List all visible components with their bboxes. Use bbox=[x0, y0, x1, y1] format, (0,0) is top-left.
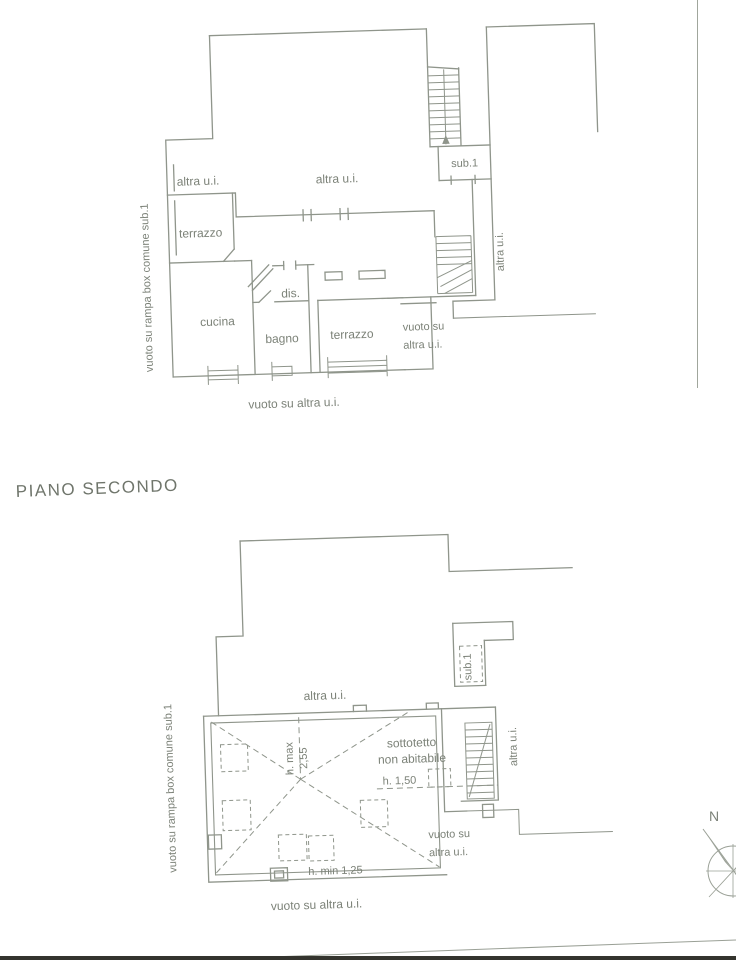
room-label-terrazzo-lower: terrazzo bbox=[330, 327, 374, 342]
lower-plan-walls bbox=[198, 530, 614, 884]
height-label-h150: h. 1,50 bbox=[383, 775, 417, 788]
side-label-altra-ui-right: altra u.i. bbox=[507, 727, 520, 766]
side-label-altra-ui-right: altra u.i. bbox=[494, 232, 507, 271]
floor-title: PIANO SECONDO bbox=[15, 476, 179, 501]
room-label-altra-ui-top: altra u.i. bbox=[303, 688, 346, 703]
void-label-line2: altra u.i. bbox=[403, 339, 442, 352]
caption-vuoto-su-altra-ui-bottom: vuoto su altra u.i. bbox=[271, 896, 363, 913]
room-label-bagno: bagno bbox=[265, 331, 299, 346]
room-label-terrazzo-upper: terrazzo bbox=[179, 225, 223, 240]
lower-stair-icon bbox=[436, 236, 473, 294]
room-label-dis: dis. bbox=[281, 286, 300, 301]
room-label-sub1: sub.1 bbox=[451, 157, 478, 170]
room-label-cucina: cucina bbox=[200, 314, 235, 329]
room-label-altra-ui-left: altra u.i. bbox=[176, 173, 219, 188]
caption-vuoto-su-rampa-left: vuoto su rampa box comune sub.1 bbox=[139, 203, 156, 372]
room-label-sottotetto-line1: sottotetto bbox=[387, 735, 437, 751]
bottom-windows bbox=[208, 355, 388, 385]
lower-plan: altra u.i. sub.1 sottotetto non abitabil… bbox=[157, 530, 614, 917]
compass-north-label: N bbox=[709, 808, 719, 824]
lower-plan-stair-icon bbox=[465, 722, 494, 799]
height-label-hmin: h. min 1,25 bbox=[308, 864, 363, 878]
caption-vuoto-su-altra-ui-bottom: vuoto su altra u.i. bbox=[248, 395, 340, 412]
void-label-line1: vuoto su bbox=[403, 320, 445, 333]
void-label-line1: vuoto su bbox=[428, 828, 470, 841]
floorplan-drawing: altra u.i. terrazzo altra u.i. sub.1 cuc… bbox=[0, 0, 736, 960]
room-label-sottotetto-line2: non abitabile bbox=[378, 751, 447, 767]
height-label-hmax-value: 2,55 bbox=[298, 747, 311, 769]
room-label-altra-ui-center: altra u.i. bbox=[315, 171, 358, 186]
caption-vuoto-su-rampa-left: vuoto su rampa box comune sub.1 bbox=[162, 704, 179, 873]
room-label-sub1: sub.1 bbox=[462, 653, 475, 680]
scanned-floorplan-sheet: altra u.i. terrazzo altra u.i. sub.1 cuc… bbox=[0, 0, 736, 960]
upper-plan: altra u.i. terrazzo altra u.i. sub.1 cuc… bbox=[134, 24, 607, 415]
void-label-line2: altra u.i. bbox=[429, 846, 468, 859]
upper-stair-treads bbox=[428, 69, 461, 145]
compass-rose: N bbox=[703, 808, 736, 898]
height-label-hmax: h. max bbox=[283, 741, 296, 775]
